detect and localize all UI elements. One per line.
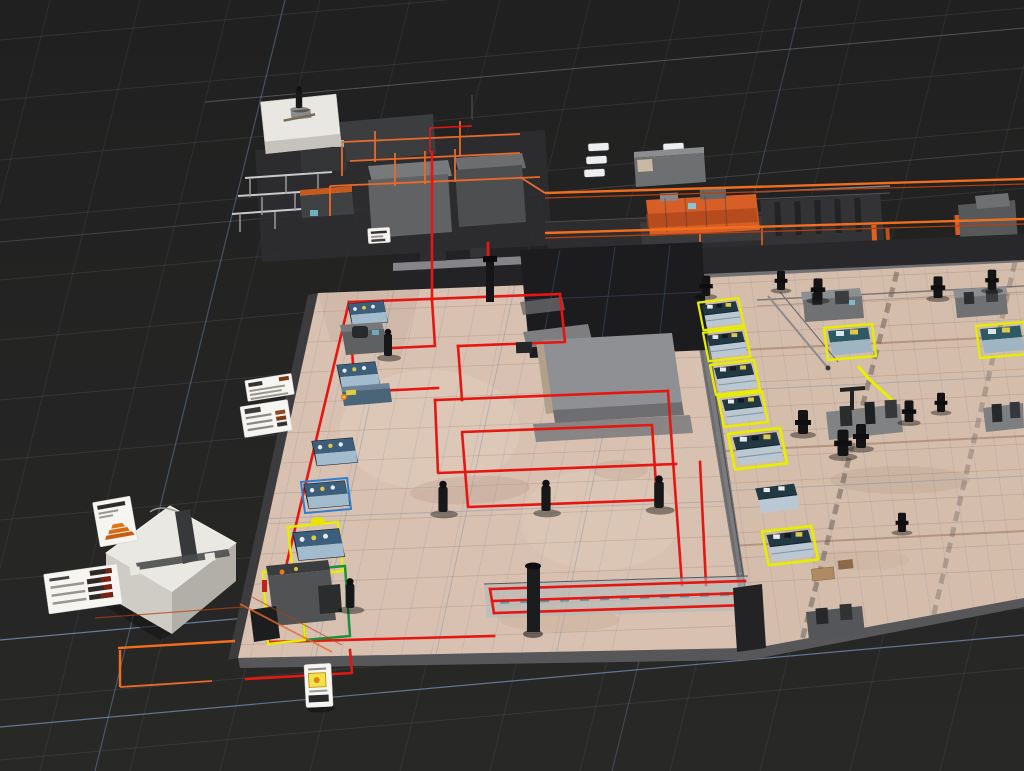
cyan-detail-2 <box>310 210 318 216</box>
cyan-detail <box>688 203 696 209</box>
conveyor-end-unit <box>733 584 766 652</box>
cabin-door <box>637 159 653 172</box>
foot <box>129 566 140 575</box>
machine-box-b[interactable] <box>300 192 354 218</box>
console-blue-2[interactable] <box>337 362 380 388</box>
vent-pad <box>584 168 605 177</box>
pole <box>486 260 494 302</box>
vent-pad <box>588 142 609 151</box>
foot <box>204 552 215 561</box>
machine-box-a[interactable] <box>300 147 347 173</box>
console-plain-1[interactable] <box>755 484 800 513</box>
low-machine-yellow-mark[interactable] <box>341 383 392 406</box>
pallet-small[interactable] <box>838 559 854 570</box>
pallet[interactable] <box>811 567 834 581</box>
factory-digital-twin-viewport <box>0 0 1024 771</box>
card-left-pyramid[interactable] <box>92 496 137 547</box>
card-bottom-tag[interactable] <box>304 663 335 713</box>
conveyor-post <box>527 566 540 632</box>
mini-annotation-tag[interactable] <box>368 227 391 243</box>
console-blue-3[interactable] <box>312 438 357 466</box>
dark-box <box>516 342 532 354</box>
console-blue-1[interactable] <box>348 301 388 325</box>
vent-pad <box>586 155 607 164</box>
scene-canvas <box>0 0 1024 771</box>
gray-machine-1[interactable] <box>340 322 388 355</box>
cnc-machine-1[interactable] <box>801 288 864 322</box>
machine-tower-2[interactable] <box>455 165 526 227</box>
